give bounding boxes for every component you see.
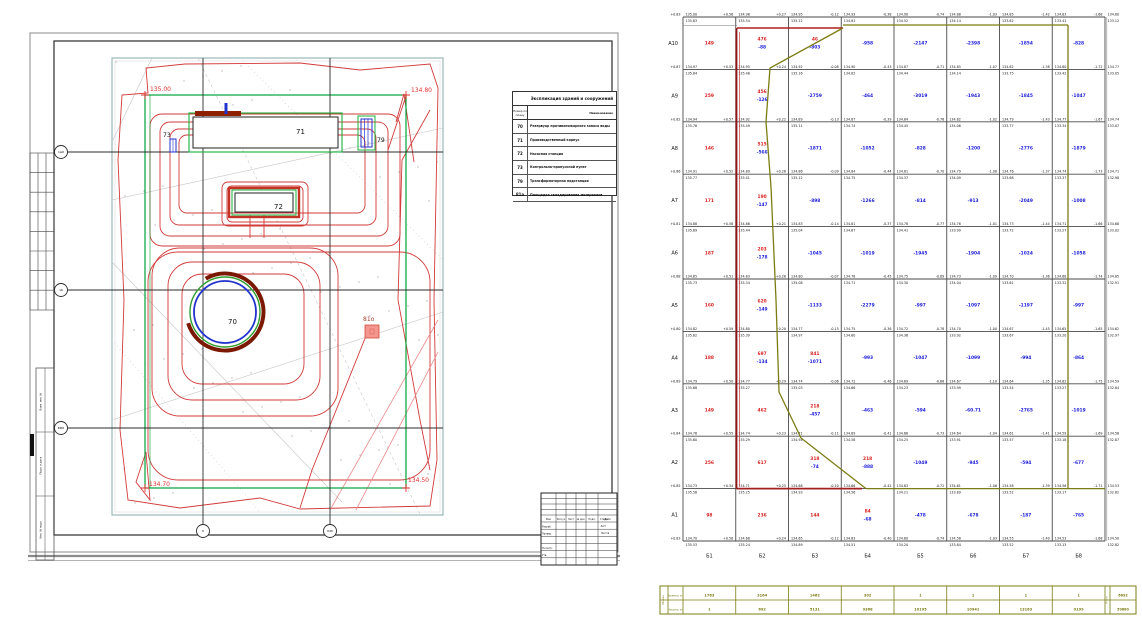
topo-dot — [172, 492, 173, 493]
topo-dot — [279, 228, 280, 229]
cartogram-col-label: Б8 — [1075, 554, 1082, 560]
node-design-elev: 134.74 — [791, 379, 803, 383]
cell-fill-volume: -1049 — [913, 460, 927, 466]
margin-label-vzam: Взам. инв. № — [40, 385, 43, 411]
node-design-elev: 134.50 — [1108, 537, 1120, 541]
node-design-elev: 134.94 — [686, 117, 698, 121]
topo-dot — [348, 420, 349, 421]
topo-dot — [339, 286, 340, 287]
cell-cut-volume: 218 — [810, 404, 819, 410]
node-design-elev: 134.76 — [949, 222, 961, 226]
elevation-label: 134.50 — [408, 477, 429, 484]
pad-81 — [365, 325, 379, 338]
axis-label: БМб — [58, 426, 65, 430]
building-72-label: 72 — [274, 203, 283, 211]
node-ground-elev: 133.91 — [949, 438, 961, 442]
topo-dot — [153, 497, 154, 498]
node-work-mark: -0.07 — [830, 275, 839, 279]
node-work-mark: -0.08 — [830, 65, 839, 69]
cell-fill-volume: -1045 — [808, 250, 822, 256]
cell-fill-volume: -3019 — [913, 93, 927, 99]
node-design-elev: 134.70 — [686, 537, 698, 541]
node-design-elev: 134.77 — [738, 379, 750, 383]
node-work-mark: +0.84 — [670, 432, 680, 436]
node-ground-elev: 134.56 — [844, 491, 856, 495]
building-79-label: 79 — [377, 137, 385, 144]
strip-cut-value: 302 — [864, 594, 872, 598]
cell-cut-volume: 146 — [705, 146, 714, 152]
node-ground-elev: 135.58 — [686, 491, 698, 495]
cartogram-col-label: Б5 — [917, 554, 924, 560]
node-ground-elev: 134.37 — [897, 176, 909, 180]
node-work-mark: -1.38 — [1041, 65, 1050, 69]
node-design-elev: 134.93 — [844, 13, 856, 17]
node-work-mark: -1.39 — [1041, 484, 1050, 488]
node-work-mark: -0.38 — [883, 13, 892, 17]
node-work-mark: -0.70 — [936, 170, 945, 174]
cell-fill-volume: -814 — [915, 198, 926, 204]
topo-dot — [378, 449, 379, 450]
topo-dot — [242, 411, 243, 412]
node-ground-elev: 132.97 — [1108, 333, 1120, 337]
titleblock-role: Н.контр. — [542, 547, 553, 550]
node-work-mark: +0.85 — [670, 484, 680, 488]
node-ground-elev: 133.52 — [1002, 491, 1014, 495]
titleblock-role: Утв. — [542, 554, 547, 557]
node-work-mark: -0.43 — [883, 65, 892, 69]
node-design-elev: 134.59 — [1055, 432, 1067, 436]
cell-cut-volume: 259 — [705, 93, 714, 99]
cell-cut-volume: 190 — [758, 194, 767, 200]
node-work-mark: +0.25 — [776, 484, 786, 488]
node-ground-elev: 134.97 — [791, 333, 803, 337]
topo-dot — [389, 483, 390, 484]
legend-row-name: Насосная станция — [528, 147, 616, 160]
title-block: Изм.Кол.учЛист№ док.Подп.ДатаРазраб.Пров… — [541, 493, 617, 565]
node-design-elev: 134.63 — [897, 484, 909, 488]
elevation-label: 134.80 — [411, 87, 432, 94]
legend-row-number: 73 — [513, 161, 528, 174]
node-ground-elev: 135.11 — [791, 124, 803, 128]
topo-dot — [260, 233, 261, 234]
titleblock-role: Провер. — [542, 533, 552, 536]
topo-dot — [201, 348, 202, 349]
strip-total-cut: 6692 — [1118, 594, 1128, 598]
node-ground-elev: 133.54 — [1002, 386, 1014, 390]
cell-fill-volume: -463 — [862, 408, 873, 414]
cell-fill-volume: -1071 — [808, 359, 822, 365]
node-design-elev: 134.86 — [738, 222, 750, 226]
node-design-elev: 134.84 — [897, 117, 909, 121]
node-work-mark: -0.74 — [936, 537, 945, 541]
cell-fill-volume: -68 — [864, 516, 872, 522]
cell-fill-volume: -1871 — [808, 146, 822, 152]
node-ground-elev: 133.18 — [1055, 438, 1067, 442]
node-design-elev: 134.69 — [844, 432, 856, 436]
node-ground-elev: 134.20 — [897, 543, 909, 547]
cell-fill-volume: -1879 — [1072, 146, 1086, 152]
node-work-mark: -1.42 — [1041, 13, 1050, 17]
node-work-mark: -1.65 — [1094, 327, 1103, 331]
node-ground-elev: 135.41 — [738, 176, 750, 180]
node-work-mark: -0.76 — [936, 117, 945, 121]
cell-fill-volume: -997 — [915, 303, 926, 309]
node-ground-elev: 134.71 — [844, 281, 856, 285]
cell-fill-volume: -60.71 — [965, 408, 981, 414]
node-ground-elev: 133.12 — [1108, 19, 1120, 23]
cell-fill-volume: -2147 — [913, 41, 927, 47]
cell-fill-volume: -1200 — [966, 146, 980, 152]
node-design-elev: 134.91 — [686, 170, 698, 174]
margin-label-inv: Инв. № подл. — [40, 513, 43, 539]
node-design-elev: 135.00 — [686, 13, 698, 17]
node-work-mark: -0.42 — [883, 484, 892, 488]
node-work-mark: -0.11 — [830, 432, 839, 436]
node-work-mark: +0.83 — [670, 537, 680, 541]
topo-dot — [232, 104, 233, 105]
node-ground-elev: 133.41 — [1055, 19, 1067, 23]
node-work-mark: +0.23 — [776, 432, 786, 436]
cell-fill-volume: -2776 — [1019, 146, 1033, 152]
node-ground-elev: 132.98 — [1108, 176, 1120, 180]
topo-dot — [418, 339, 419, 340]
cell-fill-volume: -2049 — [1019, 198, 1033, 204]
node-work-mark: +0.59 — [723, 327, 733, 331]
node-design-elev: 134.61 — [1002, 432, 1014, 436]
node-design-elev: 134.68 — [1055, 275, 1067, 279]
cell-fill-volume: -864 — [1073, 355, 1084, 361]
cell-fill-volume: -149 — [757, 307, 768, 313]
strip-left-note: Объемы — [662, 595, 665, 605]
topo-dot — [154, 224, 155, 225]
node-work-mark: +0.89 — [670, 379, 680, 383]
strip-cut-value: 1 — [1025, 594, 1028, 598]
cell-fill-volume: -178 — [757, 254, 768, 260]
node-ground-elev: 133.27 — [1055, 229, 1067, 233]
node-work-mark: -1.35 — [1041, 379, 1050, 383]
node-work-mark: +0.50 — [723, 379, 733, 383]
titleblock-stage: Листов — [601, 532, 610, 535]
node-ground-elev: 133.42 — [1055, 71, 1067, 75]
node-design-elev: 134.95 — [738, 65, 750, 69]
topo-dot — [231, 377, 232, 378]
node-design-elev: 134.60 — [897, 537, 909, 541]
margin-label-podp: Подп. и дата — [40, 449, 43, 475]
node-design-elev: 134.78 — [897, 222, 909, 226]
node-design-elev: 134.85 — [686, 275, 698, 279]
axis-label: б — [202, 529, 204, 533]
topo-dot — [250, 372, 251, 373]
node-work-mark: +0.28 — [776, 275, 786, 279]
cell-fill-volume: -1058 — [1072, 250, 1086, 256]
node-design-elev: 134.68 — [791, 484, 803, 488]
node-design-elev: 134.79 — [686, 379, 698, 383]
legend-header-row: Номер по плану Наименование — [513, 106, 616, 120]
node-design-elev: 134.98 — [738, 13, 750, 17]
strip-fill-value: 5131 — [810, 608, 821, 612]
legend-row-name: Производственный корпус — [528, 134, 616, 147]
node-design-elev: 134.88 — [686, 222, 698, 226]
tank-70-label: 70 — [228, 318, 237, 326]
node-work-mark: +0.54 — [723, 484, 733, 488]
node-design-elev: 134.87 — [897, 65, 909, 69]
titleblock-header: Лист — [568, 518, 575, 521]
node-design-elev: 134.83 — [738, 275, 750, 279]
strip-cut-value: 1 — [972, 594, 975, 598]
node-work-mark: -1.10 — [988, 379, 997, 383]
node-ground-elev: 133.84 — [949, 543, 961, 547]
node-ground-elev: 135.84 — [686, 71, 698, 75]
legend-row-name: Контрольно-пропускной пункт — [528, 161, 616, 174]
legend-title: Экспликация зданий и сооружений — [513, 92, 616, 106]
node-design-elev: 134.83 — [791, 222, 803, 226]
node-design-elev: 134.71 — [1055, 222, 1067, 226]
node-work-mark: -1.36 — [1041, 275, 1050, 279]
cell-fill-volume: -594 — [915, 408, 926, 414]
node-ground-elev: 135.29 — [738, 438, 750, 442]
cell-cut-volume: 171 — [705, 198, 714, 204]
topo-dot — [437, 334, 438, 335]
legend-row: 81аПлощадка складирования материалов — [513, 188, 616, 202]
node-design-elev: 134.73 — [1002, 222, 1014, 226]
node-work-mark: -0.46 — [883, 379, 892, 383]
cartogram-row-label: А10 — [668, 41, 678, 47]
node-design-elev: 134.73 — [686, 484, 698, 488]
topo-dot — [426, 300, 427, 301]
node-ground-elev: 132.87 — [1108, 438, 1120, 442]
topo-dot — [240, 65, 241, 66]
building-71 — [193, 117, 338, 148]
cell-fill-volume: -1904 — [966, 250, 980, 256]
cell-fill-volume: -1945 — [913, 250, 927, 256]
node-work-mark: +0.26 — [776, 170, 786, 174]
topo-dot — [124, 195, 125, 196]
node-ground-elev: 134.52 — [897, 19, 909, 23]
cell-fill-volume: -828 — [915, 146, 926, 152]
topo-dot — [134, 502, 135, 503]
node-work-mark: -0.12 — [830, 13, 839, 17]
node-design-elev: 134.90 — [844, 65, 856, 69]
node-ground-elev: 133.13 — [1055, 543, 1067, 547]
node-ground-elev: 134.41 — [897, 229, 909, 233]
node-design-elev: 134.58 — [949, 537, 961, 541]
node-ground-elev: 135.60 — [686, 438, 698, 442]
cell-fill-volume: -765 — [1073, 512, 1084, 518]
node-work-mark: -1.74 — [1094, 275, 1103, 279]
topo-dot — [309, 257, 310, 258]
legend-row: 70Резервуар противопожарного запаса воды — [513, 120, 616, 134]
node-design-elev: 134.97 — [686, 65, 698, 69]
node-ground-elev: 134.14 — [949, 19, 961, 23]
cell-fill-volume: -134 — [757, 359, 768, 365]
node-ground-elev: 133.99 — [949, 386, 961, 390]
node-work-mark: -1.75 — [1094, 379, 1103, 383]
cell-fill-volume: -1197 — [1019, 303, 1033, 309]
node-work-mark: -1.37 — [1041, 170, 1050, 174]
node-ground-elev: 133.82 — [1002, 19, 1014, 23]
cell-fill-volume: -1052 — [861, 146, 875, 152]
node-ground-elev: 135.39 — [738, 333, 750, 337]
topo-dot — [291, 435, 292, 436]
node-design-elev: 134.71 — [1108, 170, 1120, 174]
node-work-mark: -1.69 — [1094, 432, 1103, 436]
cartogram-col-label: Б4 — [864, 554, 871, 560]
node-work-mark: -1.40 — [1041, 537, 1050, 541]
node-design-elev: 134.72 — [844, 379, 856, 383]
cell-fill-volume: -1047 — [1072, 93, 1086, 99]
topo-dot — [251, 99, 252, 100]
node-design-elev: 134.74 — [738, 432, 750, 436]
topo-dot — [407, 305, 408, 306]
legend-row-number: 70 — [513, 120, 528, 133]
node-work-mark: -1.04 — [988, 432, 997, 436]
topo-dot — [152, 324, 153, 325]
cell-fill-volume: -993 — [862, 355, 873, 361]
strip-cut-value: 3164 — [757, 594, 768, 598]
node-design-elev: 134.80 — [1108, 13, 1120, 17]
node-work-mark: -1.72 — [1094, 65, 1103, 69]
node-ground-elev: 134.23 — [897, 386, 909, 390]
node-ground-elev: 135.53 — [686, 543, 698, 547]
node-ground-elev: 134.75 — [844, 176, 856, 180]
cell-cut-volume: 188 — [705, 355, 714, 361]
titleblock-role: Разраб. — [542, 526, 552, 529]
node-design-elev: 134.80 — [1055, 65, 1067, 69]
node-work-mark: -0.39 — [883, 117, 892, 121]
topo-dot — [359, 454, 360, 455]
node-design-elev: 134.75 — [844, 327, 856, 331]
topo-dot — [261, 406, 262, 407]
node-design-elev: 134.82 — [949, 117, 961, 121]
node-ground-elev: 133.61 — [1002, 281, 1014, 285]
node-design-elev: 134.95 — [791, 13, 803, 17]
cell-fill-volume: -2398 — [966, 41, 980, 47]
topo-dot — [203, 248, 204, 249]
cell-fill-volume: -464 — [862, 93, 873, 99]
node-ground-elev: 133.05 — [1108, 71, 1120, 75]
titleblock-header: № док. — [577, 518, 586, 521]
node-design-elev: 134.56 — [1055, 484, 1067, 488]
node-work-mark: +0.81 — [670, 222, 680, 226]
node-work-mark: -0.45 — [883, 275, 892, 279]
node-work-mark: -0.09 — [830, 170, 839, 174]
axis-label: 1мб — [58, 150, 64, 154]
cell-fill-volume: -126 — [757, 97, 768, 103]
cell-fill-volume: -1854 — [1019, 41, 1033, 47]
node-design-elev: 134.77 — [1055, 117, 1067, 121]
node-design-elev: 134.77 — [1108, 65, 1120, 69]
cell-fill-volume: -566 — [757, 150, 768, 156]
node-ground-elev: 135.24 — [738, 543, 750, 547]
green-boundary — [141, 91, 410, 492]
legend-rows: 70Резервуар противопожарного запаса воды… — [513, 120, 616, 202]
node-design-elev: 134.87 — [844, 117, 856, 121]
node-work-mark: +0.29 — [776, 379, 786, 383]
node-ground-elev: 134.14 — [949, 71, 961, 75]
strip-fill-value: 10195 — [914, 608, 927, 612]
node-ground-elev: 133.99 — [949, 229, 961, 233]
node-work-mark: -1.41 — [1041, 432, 1050, 436]
node-ground-elev: 135.69 — [686, 229, 698, 233]
topo-dot — [289, 89, 290, 90]
node-ground-elev: 132.91 — [1108, 281, 1120, 285]
topo-dot — [427, 473, 428, 474]
cell-fill-volume: -1008 — [1072, 198, 1086, 204]
topo-dot — [428, 200, 429, 201]
node-work-mark: -0.15 — [830, 327, 839, 331]
node-design-elev: 134.66 — [844, 484, 856, 488]
node-design-elev: 134.62 — [1108, 327, 1120, 331]
node-work-mark: +0.51 — [723, 275, 733, 279]
node-ground-elev: 133.02 — [1108, 229, 1120, 233]
cell-fill-volume: -1047 — [913, 355, 927, 361]
cell-fill-volume: -913 — [968, 198, 979, 204]
legend-row: 72Насосная станция — [513, 147, 616, 161]
titleblock-header: Изм. — [546, 518, 552, 521]
node-design-elev: 134.79 — [949, 170, 961, 174]
node-ground-elev: 134.93 — [791, 491, 803, 495]
cartogram-col-label: Б7 — [1023, 554, 1030, 560]
topo-dot — [271, 267, 272, 268]
node-ground-elev: 134.21 — [897, 491, 909, 495]
topo-dot — [349, 147, 350, 148]
node-ground-elev: 135.48 — [738, 71, 750, 75]
topo-dot — [310, 430, 311, 431]
cell-fill-volume: -1097 — [966, 303, 980, 309]
cell-cut-volume: 160 — [705, 303, 714, 309]
legend-row: 73Контрольно-пропускной пункт — [513, 161, 616, 175]
node-work-mark: +0.56 — [723, 13, 733, 17]
cartogram-col-label: Б2 — [759, 554, 766, 560]
topo-dot — [299, 396, 300, 397]
cartogram-row-label: А3 — [671, 408, 678, 414]
node-ground-elev: 134.94 — [791, 438, 803, 442]
topo-dot — [163, 358, 164, 359]
cell-cut-volume: 203 — [758, 246, 767, 252]
node-work-mark: +0.88 — [670, 275, 680, 279]
topo-dot — [398, 171, 399, 172]
topo-dot — [388, 310, 389, 311]
node-work-mark: -0.69 — [936, 275, 945, 279]
volume-strip: Выемка, м³Насыпь, м³17633164146230211111… — [660, 586, 1136, 614]
topo-dot — [183, 80, 184, 81]
node-design-elev: 134.68 — [738, 537, 750, 541]
cell-fill-volume: -994 — [1020, 355, 1031, 361]
legend-row-name: Площадка складирования материалов — [528, 188, 616, 201]
node-design-elev: 134.71 — [791, 432, 803, 436]
node-ground-elev: 133.37 — [1055, 176, 1067, 180]
topo-dot — [222, 243, 223, 244]
node-work-mark: -0.72 — [936, 484, 945, 488]
cell-fill-volume: -678 — [968, 512, 979, 518]
node-work-mark: -0.44 — [883, 170, 892, 174]
node-ground-elev: 134.25 — [897, 438, 909, 442]
node-work-mark: +0.58 — [723, 222, 733, 226]
node-design-elev: 134.82 — [1002, 65, 1014, 69]
node-work-mark: -1.00 — [988, 327, 997, 331]
node-design-elev: 134.85 — [1002, 13, 1014, 17]
topo-dot — [340, 459, 341, 460]
node-ground-elev: 135.54 — [738, 19, 750, 23]
cell-fill-volume: -888 — [862, 464, 873, 470]
cell-fill-volume: -1845 — [1019, 93, 1033, 99]
node-work-mark: -1.44 — [1041, 222, 1050, 226]
topo-dot — [397, 444, 398, 445]
cell-cut-volume: 462 — [758, 408, 767, 414]
cartogram-row-label: А5 — [671, 303, 678, 309]
node-work-mark: -1.01 — [988, 222, 997, 226]
cell-fill-volume: -1133 — [808, 303, 822, 309]
